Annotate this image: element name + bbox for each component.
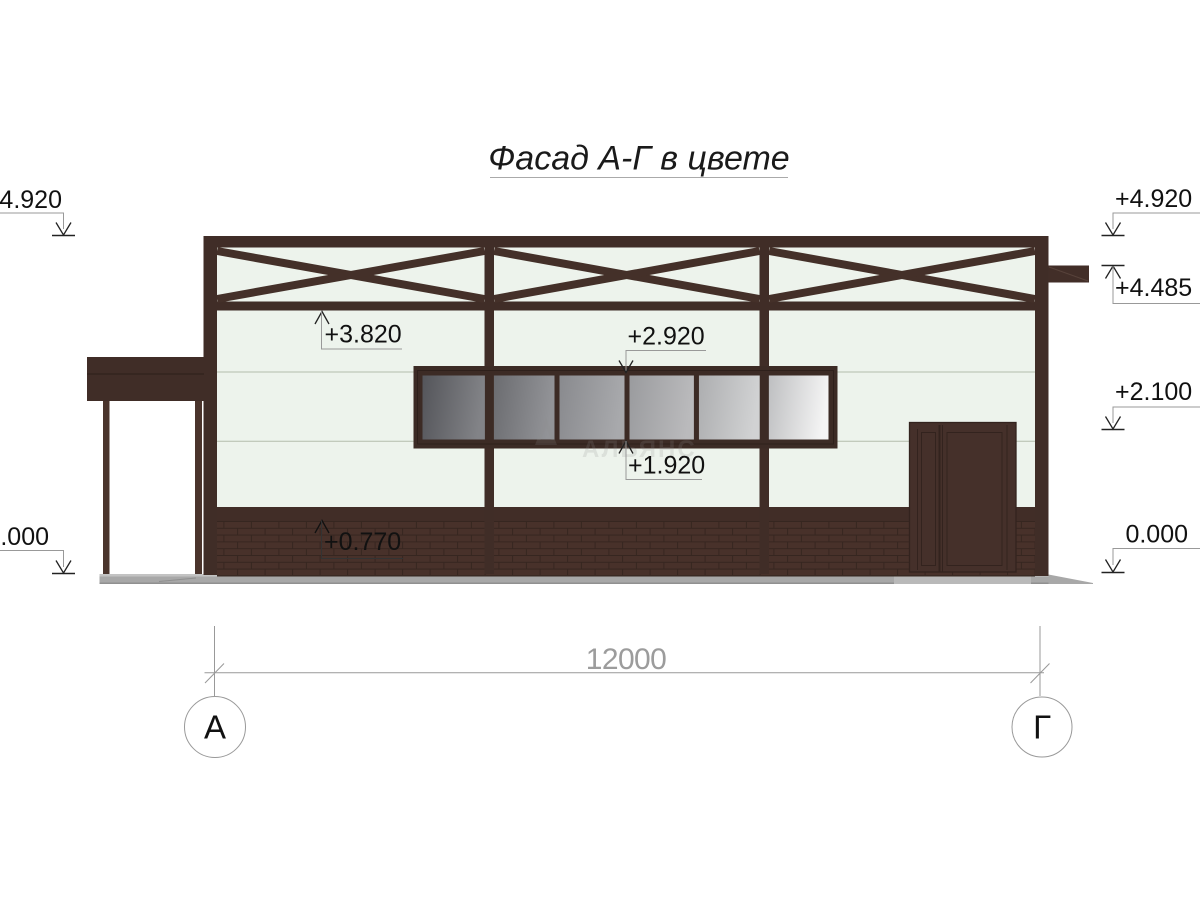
svg-text:+4.920: +4.920 xyxy=(0,186,62,214)
svg-text:А: А xyxy=(204,709,226,746)
svg-text:+1.920: +1.920 xyxy=(628,452,705,480)
svg-text:+4.920: +4.920 xyxy=(1115,185,1192,213)
svg-text:+2.100: +2.100 xyxy=(1115,378,1192,406)
svg-text:+2.920: +2.920 xyxy=(628,323,705,351)
svg-text:Фасад А-Г в цвете: Фасад А-Г в цвете xyxy=(488,140,789,178)
svg-text:+0.770: +0.770 xyxy=(324,528,401,556)
svg-text:12000: 12000 xyxy=(586,643,666,676)
svg-text:+3.820: +3.820 xyxy=(325,321,402,349)
svg-text:Г: Г xyxy=(1033,709,1051,746)
svg-text:+4.485: +4.485 xyxy=(1115,274,1192,302)
svg-text:0.000: 0.000 xyxy=(1125,521,1188,549)
svg-text:0.000: 0.000 xyxy=(0,523,49,551)
